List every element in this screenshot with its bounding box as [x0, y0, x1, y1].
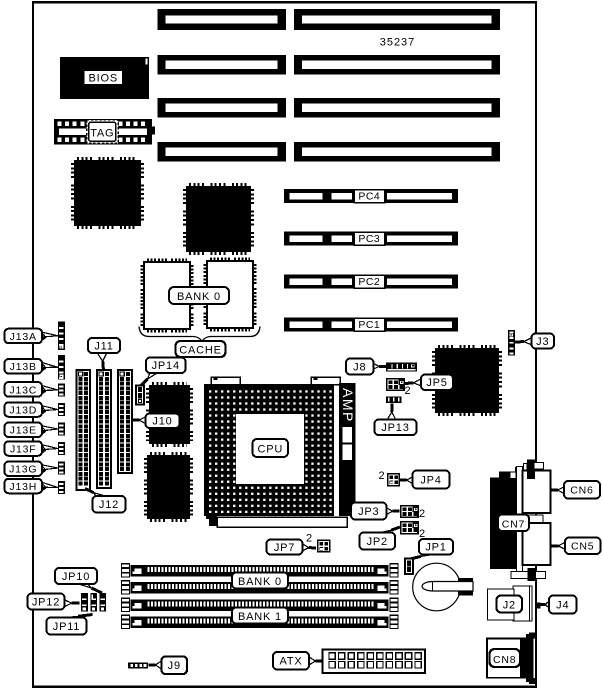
svg-text:JP13: JP13	[381, 422, 409, 434]
svg-text:JP3: JP3	[358, 506, 379, 518]
svg-text:J10: J10	[152, 416, 172, 428]
svg-text:J13E: J13E	[10, 425, 37, 437]
svg-text:35237: 35237	[380, 37, 416, 49]
svg-text:J2: J2	[503, 600, 516, 612]
svg-text:2: 2	[404, 385, 410, 397]
svg-text:CPU: CPU	[257, 444, 283, 456]
svg-text:2: 2	[419, 508, 425, 520]
svg-text:JP10: JP10	[62, 571, 90, 583]
svg-text:JP1: JP1	[425, 542, 446, 554]
svg-text:TAG: TAG	[90, 127, 114, 139]
svg-text:PC4: PC4	[358, 191, 380, 203]
svg-text:JP12: JP12	[32, 596, 60, 608]
svg-text:PC3: PC3	[358, 233, 380, 245]
svg-text:CN8: CN8	[493, 654, 516, 666]
svg-text:J11: J11	[94, 340, 113, 352]
svg-text:J13C: J13C	[9, 384, 37, 396]
svg-text:BANK 0: BANK 0	[238, 576, 282, 588]
svg-text:JP2: JP2	[367, 536, 388, 548]
svg-text:JP7: JP7	[274, 542, 295, 554]
svg-text:JP4: JP4	[420, 474, 441, 486]
svg-text:J13H: J13H	[9, 481, 37, 493]
svg-text:ATX: ATX	[280, 656, 303, 668]
svg-text:PC1: PC1	[358, 319, 380, 331]
svg-text:JP5: JP5	[426, 377, 447, 389]
svg-text:PC2: PC2	[358, 276, 380, 288]
svg-text:J9: J9	[168, 660, 181, 672]
svg-text:J13F: J13F	[10, 443, 37, 455]
svg-text:BIOS: BIOS	[89, 73, 119, 85]
svg-text:J13D: J13D	[9, 404, 37, 416]
svg-text:CACHE: CACHE	[179, 344, 222, 356]
svg-text:AMP: AMP	[340, 388, 356, 423]
svg-text:CN6: CN6	[570, 485, 593, 497]
svg-text:JP11: JP11	[53, 621, 80, 633]
svg-text:J4: J4	[556, 599, 569, 611]
svg-text:CN5: CN5	[571, 541, 594, 553]
svg-text:BANK 0: BANK 0	[177, 291, 221, 303]
svg-text:CN7: CN7	[502, 518, 525, 530]
svg-text:J13B: J13B	[10, 361, 37, 373]
svg-text:J8: J8	[353, 361, 366, 373]
svg-text:J3: J3	[536, 336, 549, 348]
svg-text:J13G: J13G	[9, 464, 37, 476]
svg-text:J12: J12	[99, 499, 119, 511]
svg-text:JP14: JP14	[152, 360, 180, 372]
svg-text:J13A: J13A	[10, 331, 37, 343]
svg-text:BANK 1: BANK 1	[238, 611, 282, 623]
svg-text:2: 2	[378, 470, 384, 482]
svg-text:2: 2	[306, 533, 312, 545]
